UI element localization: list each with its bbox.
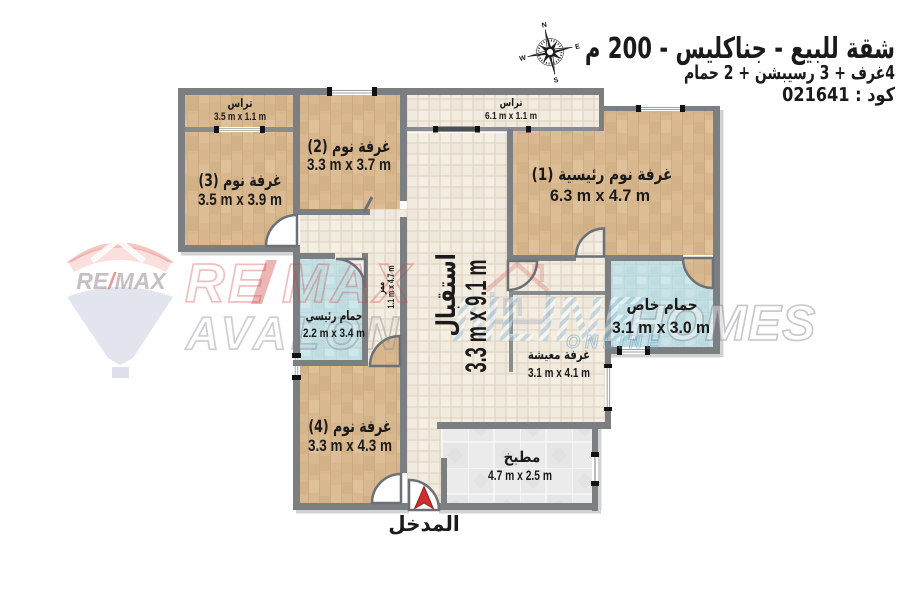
svg-text:RE/MAX: RE/MAX (76, 268, 167, 294)
svg-text:3.1 m x 4.1 m: 3.1 m x 4.1 m (528, 366, 590, 380)
svg-text:6.1 m x 1.1 m: 6.1 m x 1.1 m (485, 110, 537, 122)
svg-text:3.3 m x 4.3 m: 3.3 m x 4.3 m (308, 437, 392, 455)
svg-text:1.1 m x 4.7 m: 1.1 m x 4.7 m (386, 266, 397, 309)
svg-text:RE: RE (185, 252, 267, 314)
svg-text:4.7 m x 2.5 m: 4.7 m x 2.5 m (488, 467, 552, 483)
svg-text:AVALON: AVALON (185, 307, 403, 359)
svg-text:3.1 m x 3.0 m: 3.1 m x 3.0 m (612, 319, 710, 337)
svg-text:3.5 m x 1.1 m: 3.5 m x 1.1 m (214, 111, 266, 123)
svg-text:2.2 m x 3.4 m: 2.2 m x 3.4 m (303, 326, 365, 340)
svg-text:6.3 m x 4.7 m: 6.3 m x 4.7 m (550, 187, 650, 205)
svg-text:3.5 m x 3.9 m: 3.5 m x 3.9 m (198, 191, 282, 209)
svg-text:3.3 m x 9.1 m: 3.3 m x 9.1 m (460, 260, 493, 373)
svg-text:3.3 m x 3.7 m: 3.3 m x 3.7 m (307, 156, 391, 174)
